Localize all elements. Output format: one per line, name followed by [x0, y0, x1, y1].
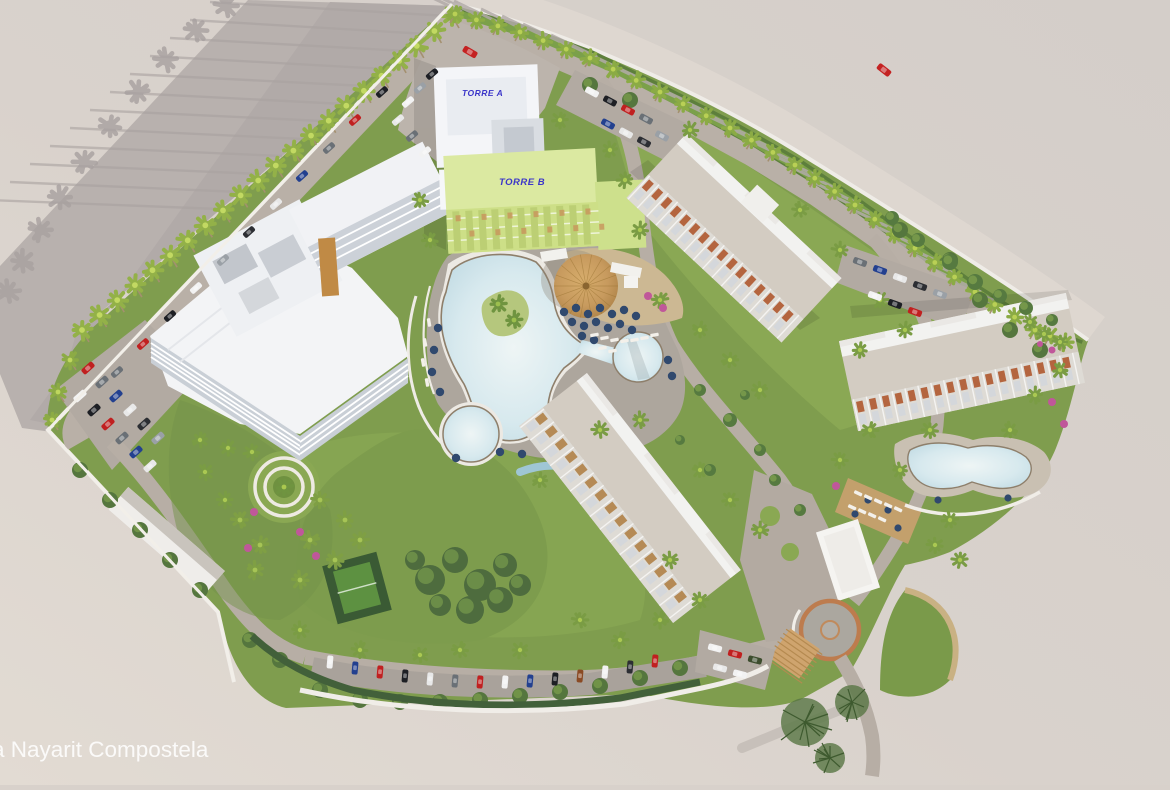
svg-text:TORRE A: TORRE A [462, 88, 503, 98]
svg-text:TORRE B: TORRE B [499, 177, 545, 188]
svg-text:a Nayarit Compostela: a Nayarit Compostela [0, 737, 209, 762]
